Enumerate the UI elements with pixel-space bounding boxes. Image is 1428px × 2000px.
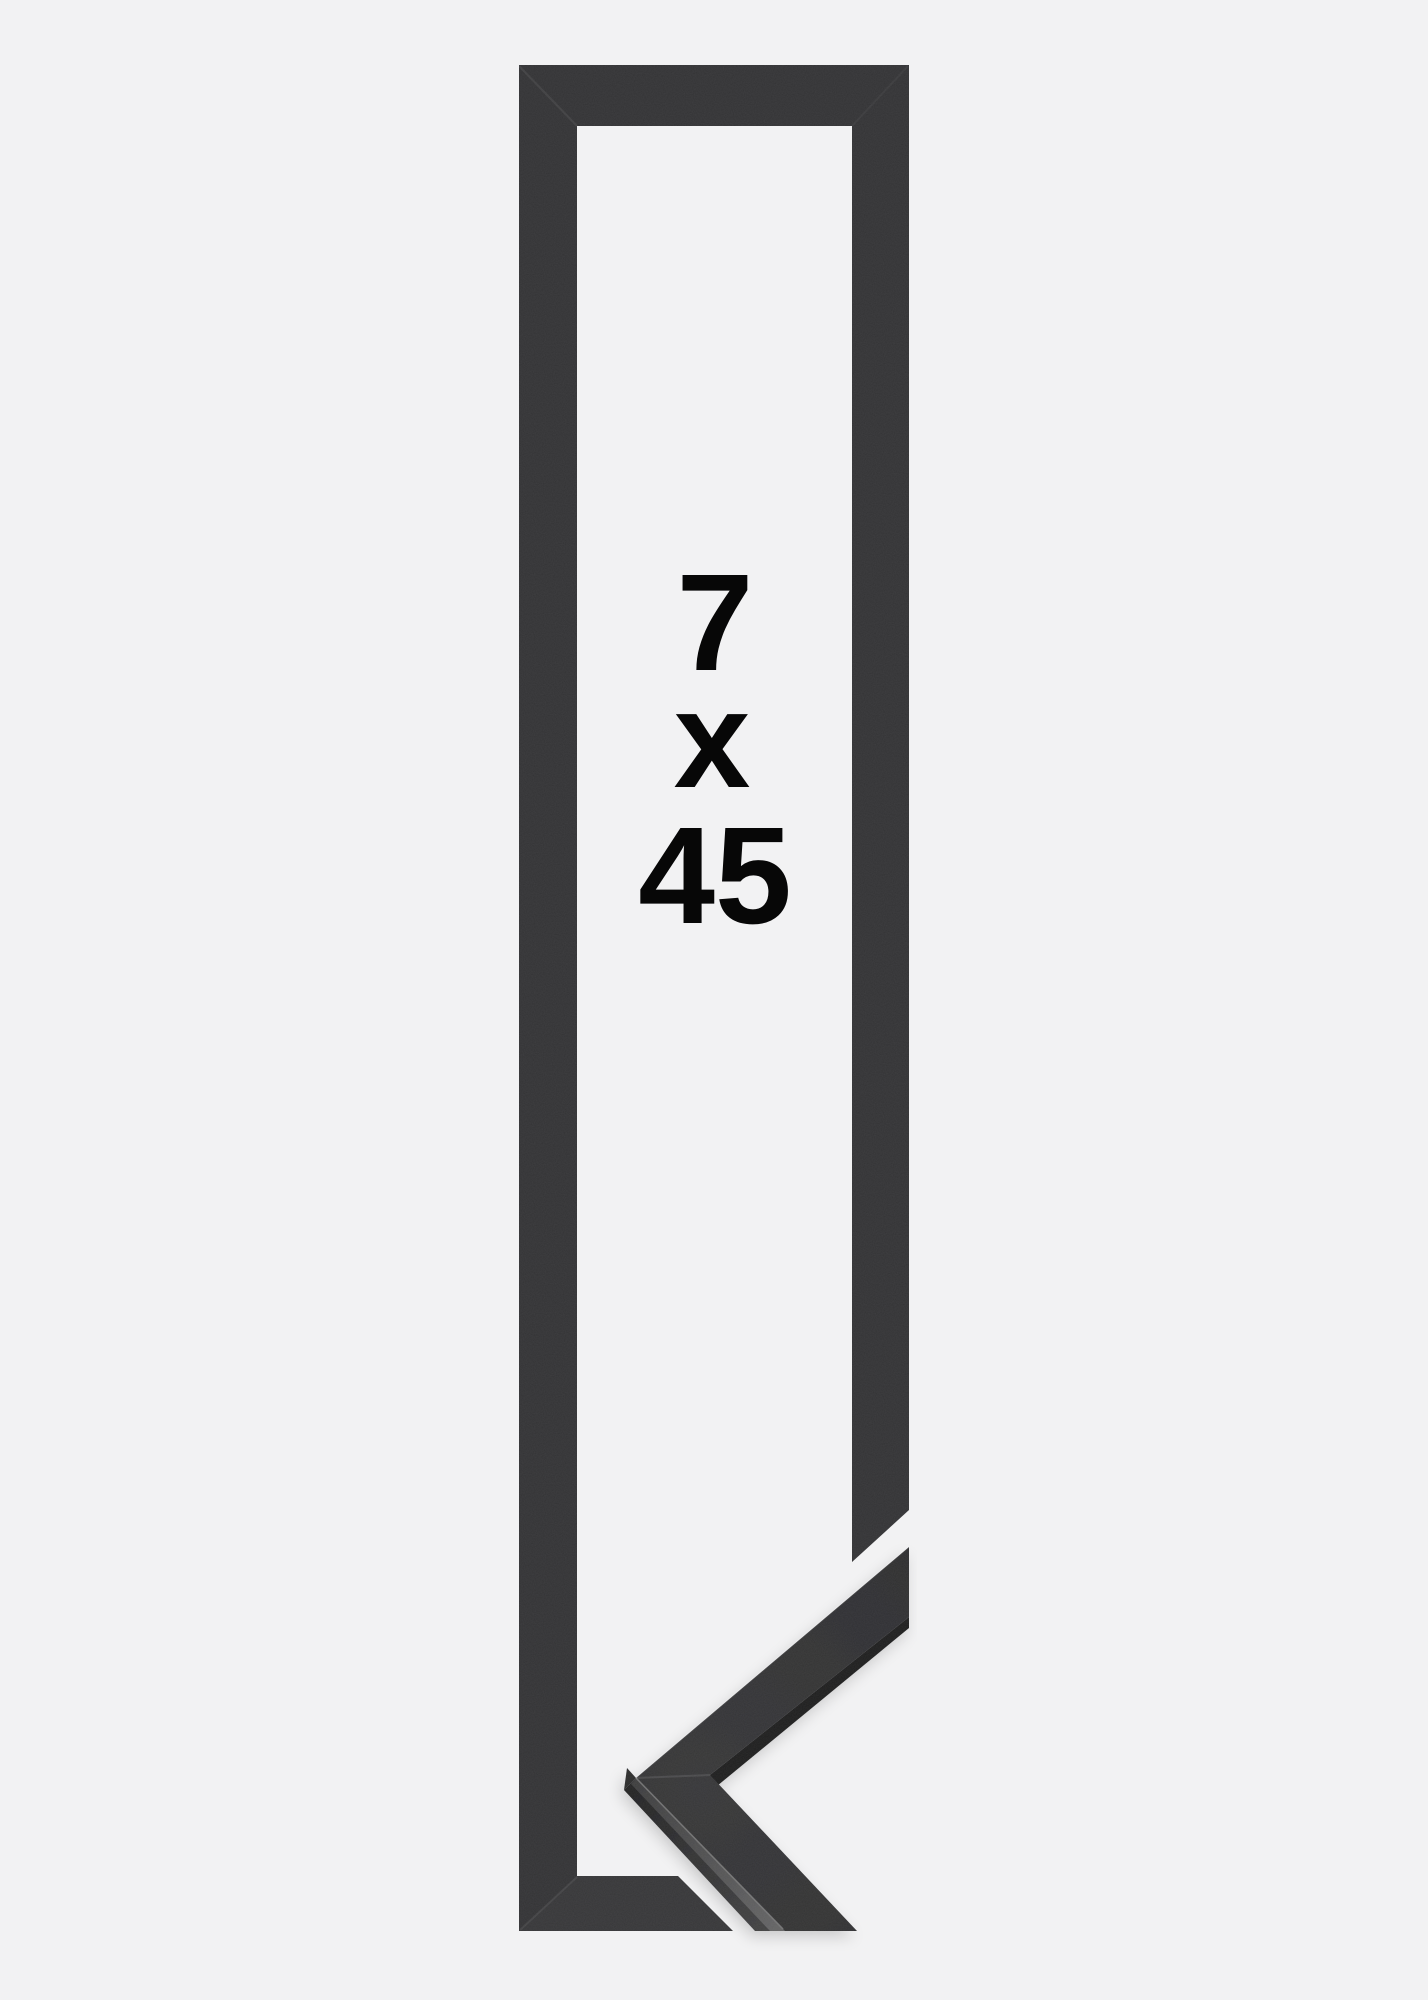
frame-product-image: 7 x 45	[0, 0, 1428, 2000]
size-separator: x	[674, 663, 751, 817]
background	[0, 0, 1428, 2000]
size-height-value: 45	[638, 799, 792, 953]
frame-size-illustration: 7 x 45	[0, 0, 1428, 2000]
